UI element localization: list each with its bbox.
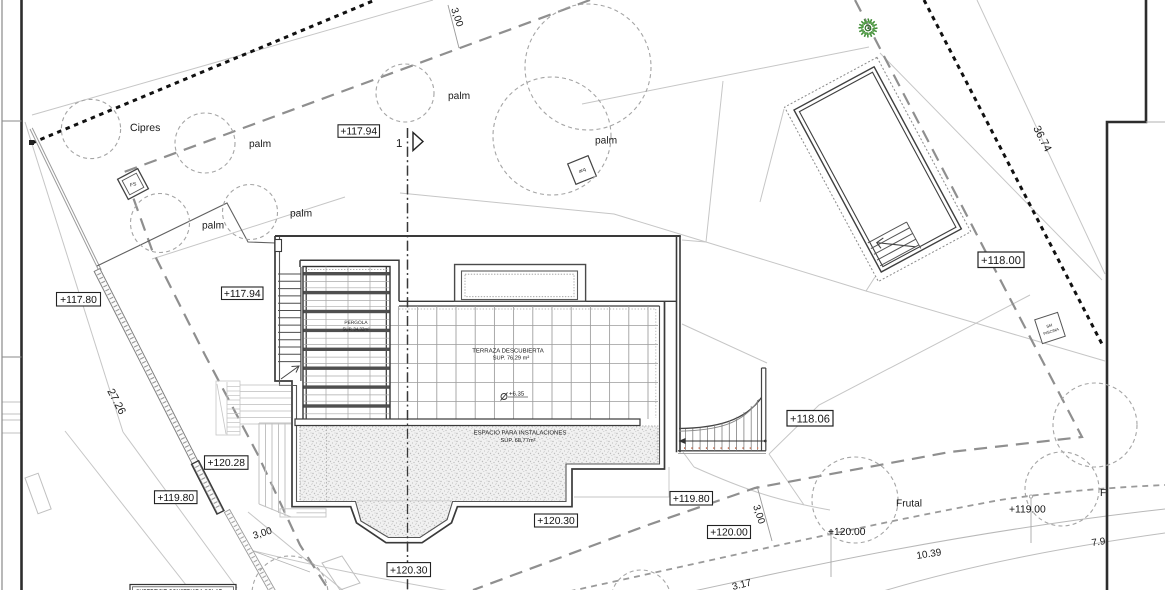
svg-text:+117.80: +117.80 (60, 295, 97, 306)
svg-text:TERRAZA DESCUBIERTA: TERRAZA DESCUBIERTA (472, 348, 543, 355)
svg-text:+120.30: +120.30 (390, 565, 428, 576)
svg-text:7.9: 7.9 (1091, 536, 1107, 549)
svg-text:+119.00: +119.00 (1009, 505, 1046, 516)
svg-text:+120.00: +120.00 (710, 528, 748, 539)
svg-text:SUP. 34,32m²: SUP. 34,32m² (342, 327, 370, 332)
svg-text:+120.30: +120.30 (537, 516, 575, 527)
svg-text:palm: palm (249, 139, 271, 150)
svg-text:palm: palm (595, 136, 617, 147)
svg-text:+117.94: +117.94 (340, 127, 377, 138)
svg-text:palm: palm (290, 209, 312, 220)
svg-text:palm: palm (202, 221, 224, 232)
svg-text:+118.00: +118.00 (981, 255, 1021, 267)
svg-text:palm: palm (448, 91, 470, 102)
svg-text:1: 1 (396, 138, 402, 150)
svg-text:ESPACIO PARA INSTALACIONES: ESPACIO PARA INSTALACIONES (474, 430, 567, 437)
svg-text:+118.06: +118.06 (790, 414, 830, 426)
svg-text:+120.00: +120.00 (828, 527, 866, 538)
svg-text:PERGOLA: PERGOLA (344, 320, 368, 326)
svg-text:SUP. 76,29 m²: SUP. 76,29 m² (493, 356, 530, 362)
svg-text:+120.28: +120.28 (207, 458, 245, 469)
svg-text:+6.35: +6.35 (509, 391, 525, 398)
svg-text:SUP. 68,77m²: SUP. 68,77m² (501, 438, 536, 444)
svg-text:Cipres: Cipres (130, 122, 160, 134)
svg-text:+119.80: +119.80 (673, 494, 710, 505)
svg-text:Frutal: Frutal (896, 499, 922, 510)
svg-text:+119.80: +119.80 (157, 493, 194, 504)
svg-text:+117.94: +117.94 (224, 289, 261, 300)
svg-text:F: F (1100, 488, 1106, 499)
